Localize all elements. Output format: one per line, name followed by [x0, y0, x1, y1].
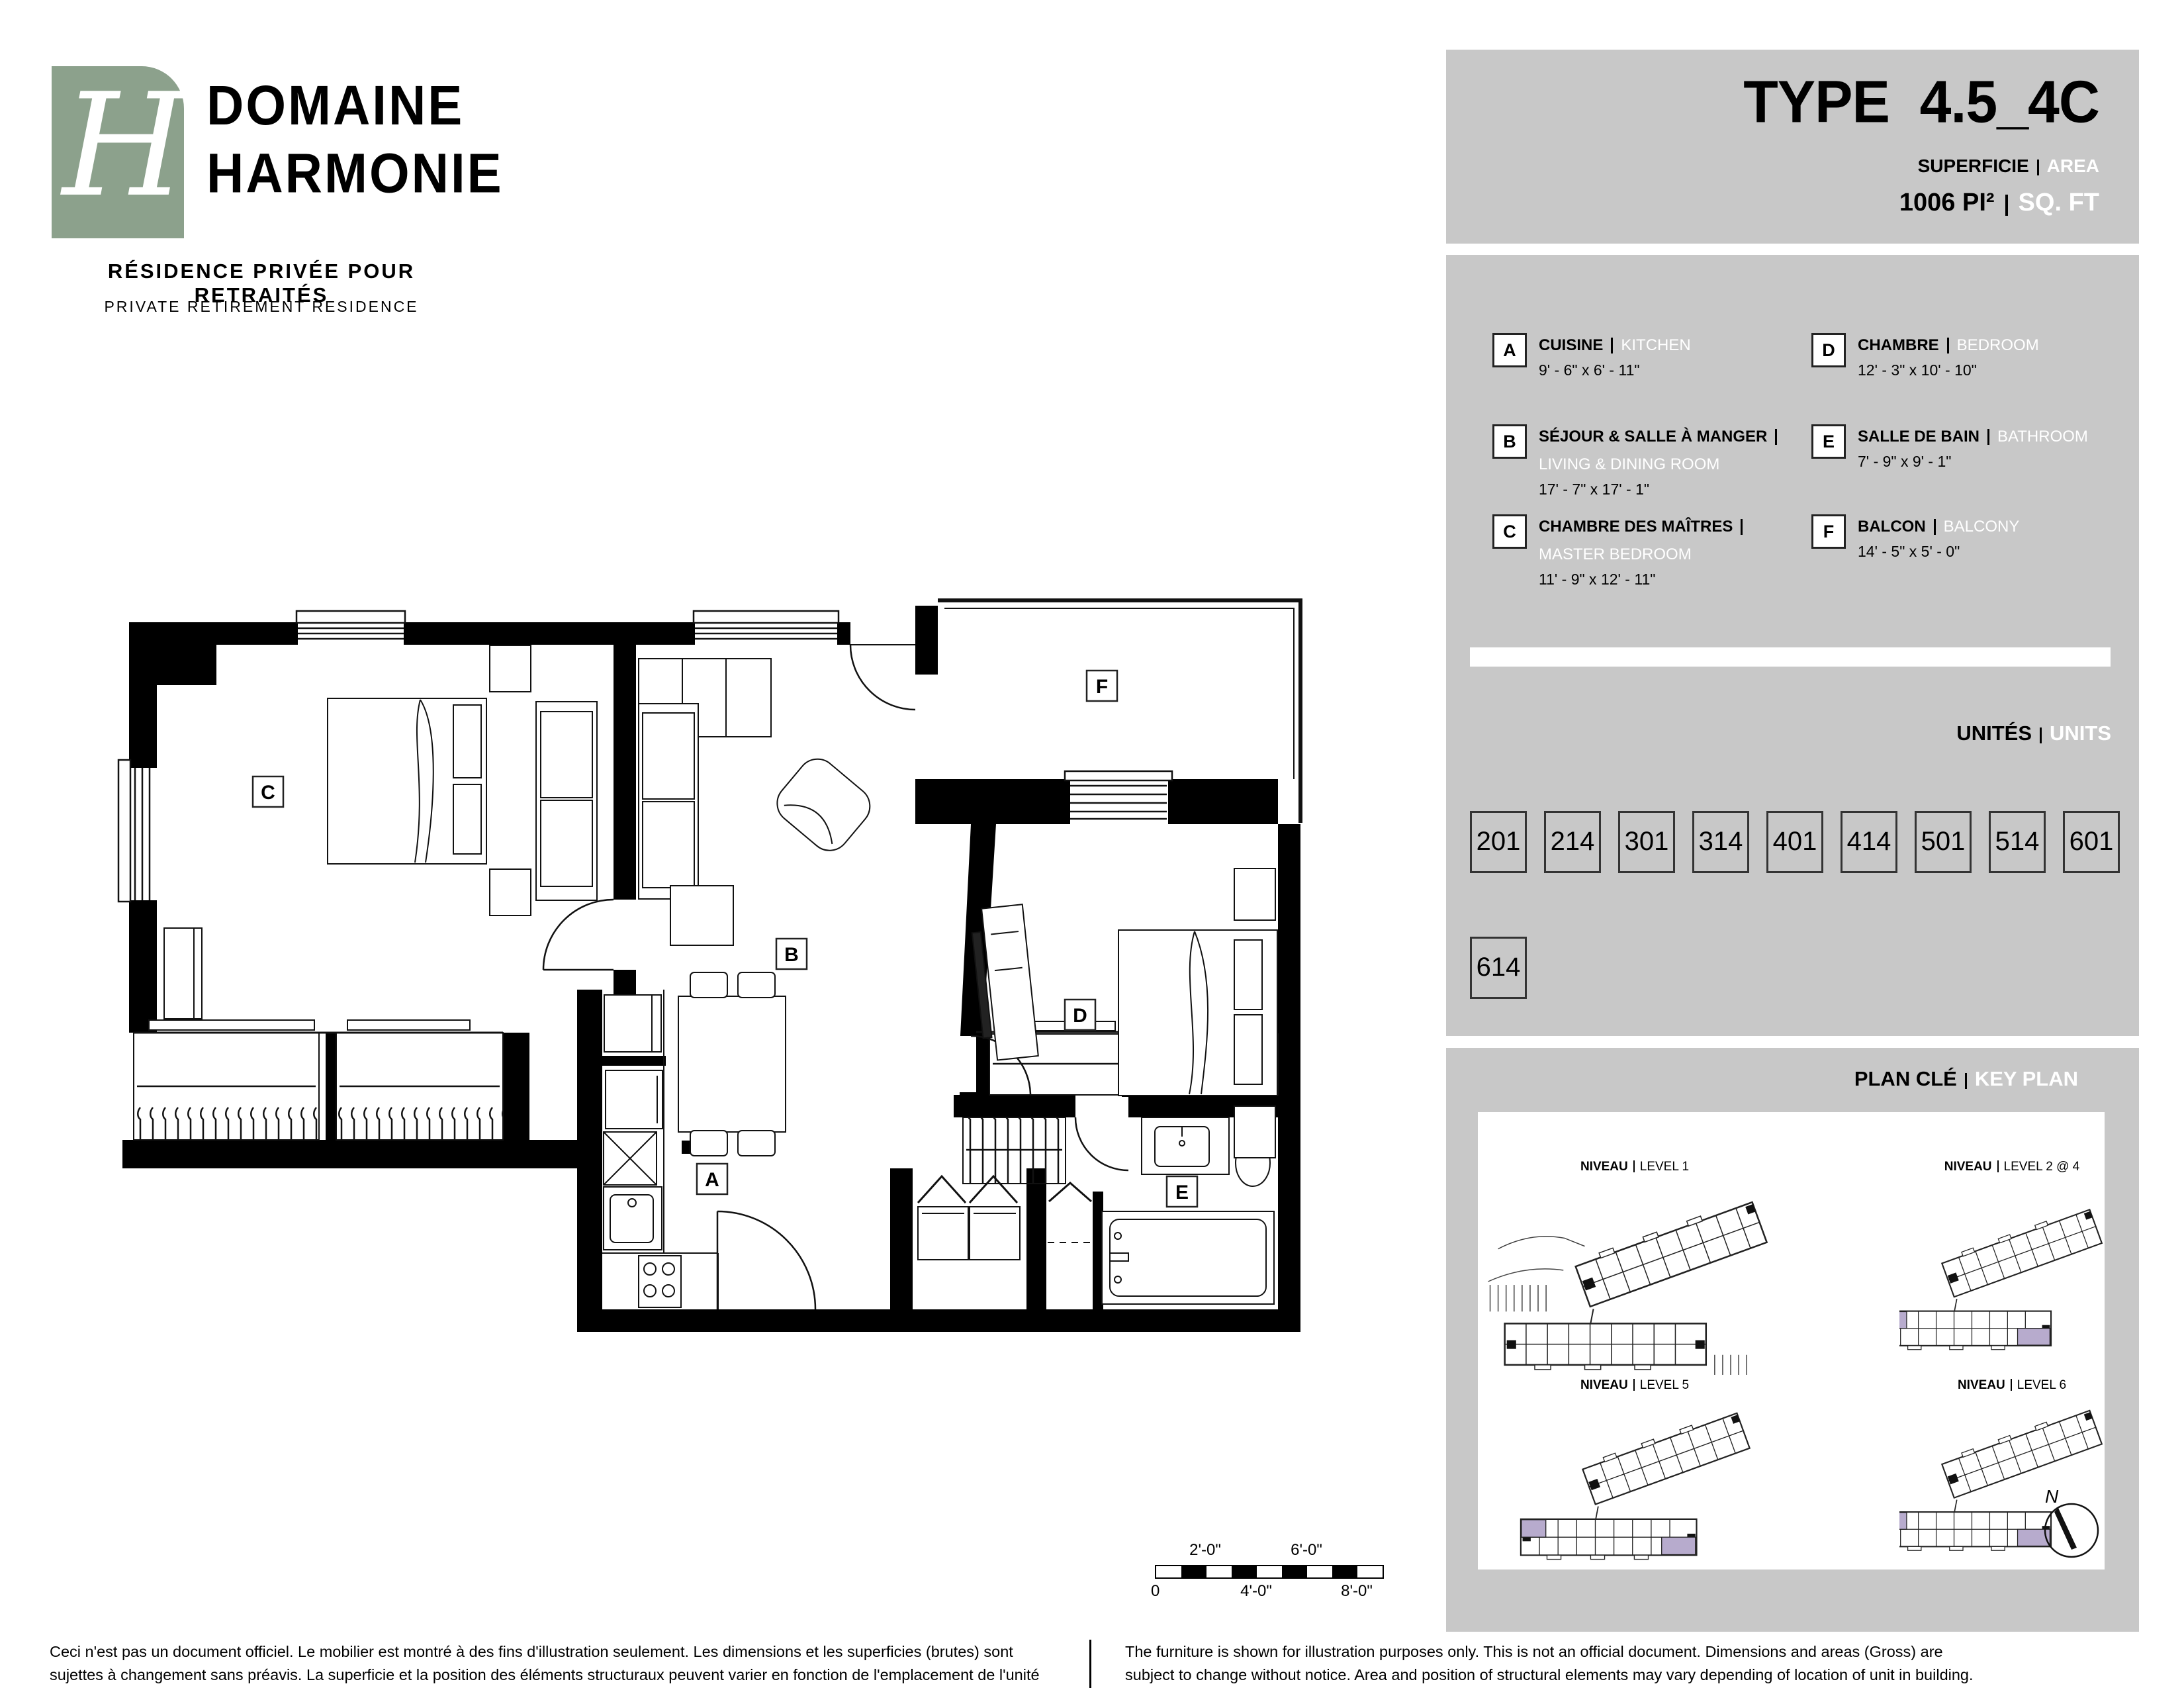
niveau-label: NIVEAU — [1958, 1378, 2005, 1392]
north-compass-icon: N — [2025, 1483, 2111, 1569]
divider — [2040, 727, 2042, 743]
mini-plan-level-5 — [1482, 1398, 1780, 1567]
divider — [1997, 1160, 1999, 1172]
scale-label-8ft: 8'-0" — [1341, 1582, 1373, 1601]
mini-plan-level-2-4 — [1899, 1185, 2111, 1378]
disclaimer-en: The furniture is shown for illustration … — [1125, 1640, 1985, 1687]
area-label-en: AREA — [2047, 156, 2099, 176]
type-title: TYPE 4.5_4C — [1504, 68, 2099, 137]
legend-name-en: BALCONY — [1944, 518, 2020, 536]
unit-badge: 301 — [1618, 811, 1675, 873]
divider — [1633, 1160, 1635, 1172]
legend-item-a: CUISINEKITCHEN 9' - 6" x 6' - 11" — [1539, 336, 1803, 379]
scale-bar: 2'-0" 6'-0" 0 4'-0" 8'-0" — [1155, 1541, 1384, 1605]
legend-item-e: SALLE DE BAINBATHROOM 7' - 9" x 9' - 1" — [1858, 428, 2122, 471]
room-label-b: B — [784, 944, 799, 966]
legend-dims: 17' - 7" x 17' - 1" — [1539, 481, 1823, 498]
unit-badge: 314 — [1692, 811, 1749, 873]
area-unit-en: SQ. FT — [2019, 189, 2099, 216]
legend-item-c: CHAMBRE DES MAÎTRES MASTER BEDROOM 11' -… — [1539, 518, 1823, 588]
logo: H — [52, 66, 184, 238]
scale-label-0: 0 — [1151, 1582, 1160, 1601]
room-label-d: D — [1073, 1005, 1087, 1027]
mini-plan-level-1 — [1482, 1185, 1780, 1378]
divider — [1934, 519, 1936, 535]
level-label-6: NIVEAULEVEL 6 — [1906, 1378, 2118, 1393]
key-plan-title-en: KEY PLAN — [1975, 1067, 2078, 1090]
legend-name-en: BATHROOM — [1997, 428, 2088, 445]
legend-letter-d: D — [1811, 333, 1846, 367]
level-label-5: NIVEAULEVEL 5 — [1502, 1378, 1767, 1393]
page: H DOMAINE HARMONIE RÉSIDENCE PRIVÉE POUR… — [0, 0, 2184, 1688]
scale-label-2ft: 2'-0" — [1189, 1541, 1221, 1560]
room-label-a: A — [705, 1169, 719, 1191]
logo-name-line2: HARMONIE — [206, 140, 504, 208]
unit-badge: 514 — [1989, 811, 2046, 873]
units-title-fr: UNITÉS — [1956, 722, 2032, 745]
legend-letter-c: C — [1492, 514, 1527, 549]
scale-bar-segments — [1155, 1565, 1384, 1579]
legend-name-fr: SÉJOUR & SALLE À MANGER — [1539, 428, 1767, 445]
legend-name-en: LIVING & DINING ROOM — [1539, 455, 1823, 474]
type-value: 4.5_4C — [1920, 69, 2099, 136]
legend-item-f: BALCONBALCONY 14' - 5" x 5' - 0" — [1858, 518, 2122, 561]
unit-badge: 614 — [1470, 937, 1527, 999]
unit-badge: 414 — [1841, 811, 1897, 873]
level-label-2: NIVEAULEVEL 2 @ 4 — [1906, 1160, 2118, 1174]
legend-item-b: SÉJOUR & SALLE À MANGER LIVING & DINING … — [1539, 428, 1823, 498]
unit-badge: 201 — [1470, 811, 1527, 873]
legend-letter-e: E — [1811, 424, 1846, 459]
legend-dims: 11' - 9" x 12' - 11" — [1539, 571, 1823, 588]
legend-dims: 12' - 3" x 10' - 10" — [1858, 361, 2122, 379]
key-plan-title: PLAN CLÉKEY PLAN — [1721, 1067, 2078, 1091]
divider — [2037, 160, 2039, 175]
level-value: LEVEL 6 — [2017, 1378, 2066, 1392]
logo-name: DOMAINE HARMONIE — [206, 71, 504, 208]
legend-name-en: MASTER BEDROOM — [1539, 545, 1823, 564]
room-label-e: E — [1175, 1182, 1189, 1203]
floor-plan: A B C D E F — [109, 573, 1334, 1334]
area-value: 1006 — [1899, 189, 1956, 216]
scale-label-4ft: 4'-0" — [1240, 1582, 1272, 1601]
legend-letter-a: A — [1492, 333, 1527, 367]
units-title-en: UNITS — [2050, 722, 2111, 745]
unit-badge: 601 — [2063, 811, 2120, 873]
legend-name-en: BEDROOM — [1957, 336, 2039, 354]
divider — [1987, 429, 1989, 445]
unit-badge: 214 — [1544, 811, 1601, 873]
niveau-label: NIVEAU — [1944, 1160, 1992, 1174]
level-value: LEVEL 5 — [1640, 1378, 1689, 1392]
room-label-c: C — [261, 782, 275, 804]
units-title: UNITÉSUNITS — [1787, 722, 2111, 745]
level-value: LEVEL 2 @ 4 — [2004, 1160, 2080, 1174]
divider — [1965, 1073, 1967, 1089]
key-plan-title-fr: PLAN CLÉ — [1854, 1067, 1957, 1090]
legend-item-d: CHAMBREBEDROOM 12' - 3" x 10' - 10" — [1858, 336, 2122, 379]
scale-label-6ft: 6'-0" — [1291, 1541, 1322, 1560]
disclaimer-fr: Ceci n'est pas un document officiel. Le … — [50, 1640, 1062, 1688]
niveau-label: NIVEAU — [1580, 1160, 1628, 1174]
niveau-label: NIVEAU — [1580, 1378, 1628, 1392]
room-label-f: F — [1096, 676, 1108, 698]
divider — [1633, 1379, 1635, 1391]
footer-divider — [1089, 1640, 1091, 1688]
legend-name-fr: CUISINE — [1539, 336, 1603, 354]
area-labels: SUPERFICIEAREA — [1504, 156, 2099, 177]
area-values: 1006 PI²SQ. FT — [1504, 189, 2099, 217]
level-value: LEVEL 1 — [1640, 1160, 1689, 1174]
divider — [2005, 195, 2008, 216]
level-label-1: NIVEAULEVEL 1 — [1502, 1160, 1767, 1174]
living-room-furniture — [639, 659, 878, 1156]
legend-dims: 14' - 5" x 5' - 0" — [1858, 543, 2122, 561]
white-divider-bar — [1470, 647, 2111, 667]
legend-name-en: KITCHEN — [1621, 336, 1690, 354]
logo-tagline-en: PRIVATE RETIREMENT RESIDENCE — [46, 298, 477, 316]
unit-badge: 401 — [1766, 811, 1823, 873]
type-label: TYPE — [1743, 69, 1889, 136]
legend-letter-b: B — [1492, 424, 1527, 459]
logo-monogram-icon: H — [58, 53, 191, 238]
master-bedroom-furniture — [164, 645, 597, 1019]
legend-name-fr: BALCON — [1858, 518, 1926, 536]
north-label: N — [2045, 1486, 2059, 1507]
laundry-fixtures — [918, 1207, 1020, 1260]
logo-name-line1: DOMAINE — [206, 71, 504, 140]
divider — [1741, 519, 1743, 535]
unit-badge: 501 — [1915, 811, 1972, 873]
legend-name-fr: CHAMBRE — [1858, 336, 1939, 354]
legend-dims: 9' - 6" x 6' - 11" — [1539, 361, 1803, 379]
divider — [1947, 338, 1949, 353]
header-panel: TYPE 4.5_4C SUPERFICIEAREA 1006 PI²SQ. F… — [1446, 50, 2139, 244]
area-label-fr: SUPERFICIE — [1918, 156, 2029, 176]
logo-green-square: H — [52, 66, 184, 238]
legend-dims: 7' - 9" x 9' - 1" — [1858, 453, 2122, 471]
divider — [1611, 338, 1613, 353]
area-unit-fr: PI² — [1962, 189, 1995, 216]
legend-letter-f: F — [1811, 514, 1846, 549]
divider — [1775, 429, 1777, 445]
divider — [2011, 1379, 2012, 1391]
legend-name-fr: CHAMBRE DES MAÎTRES — [1539, 518, 1733, 536]
legend-name-fr: SALLE DE BAIN — [1858, 428, 1979, 445]
